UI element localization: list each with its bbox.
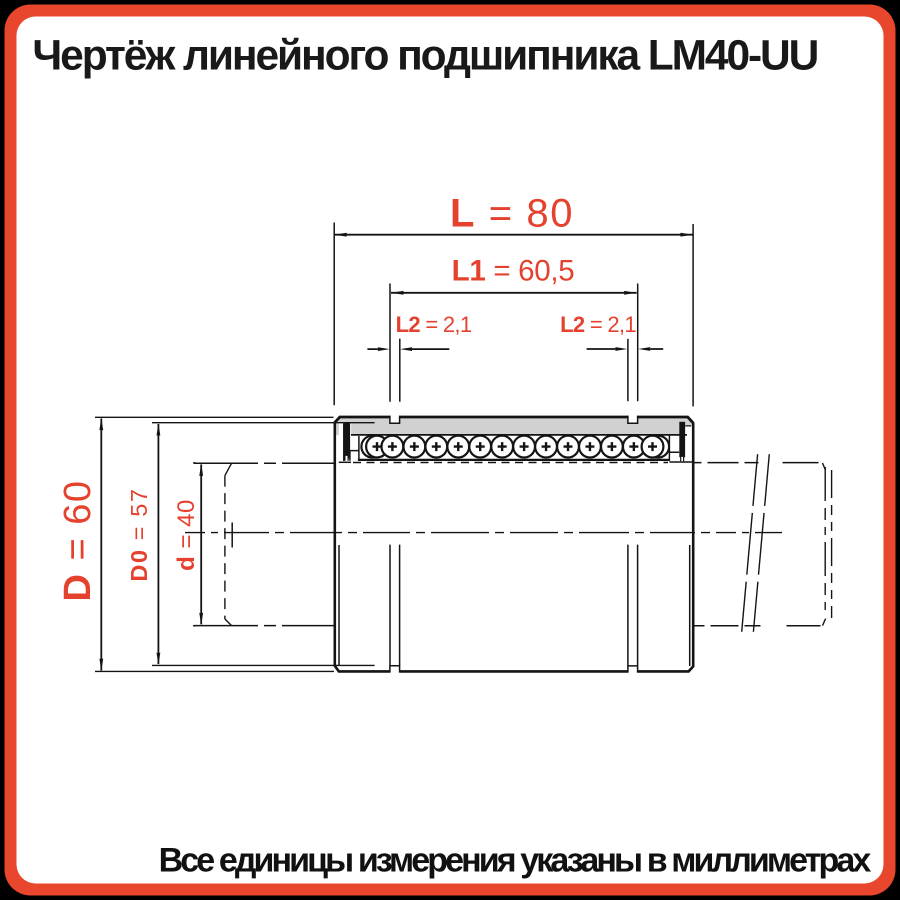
svg-text:L2 = 2,1: L2 = 2,1: [396, 312, 472, 337]
svg-text:Все единицы измерения указаны: Все единицы измерения указаны в миллимет…: [159, 841, 872, 879]
svg-text:L1 = 60,5: L1 = 60,5: [452, 255, 575, 288]
svg-text:D0 = 57: D0 = 57: [126, 487, 152, 581]
svg-text:L = 80: L = 80: [450, 192, 574, 236]
svg-text:L2 = 2,1: L2 = 2,1: [560, 312, 636, 337]
svg-text:D = 60: D = 60: [57, 479, 99, 601]
svg-text:d = 40: d = 40: [173, 499, 200, 571]
svg-text:Чертёж линейного подшипника LM: Чертёж линейного подшипника LM40-UU: [32, 32, 817, 79]
